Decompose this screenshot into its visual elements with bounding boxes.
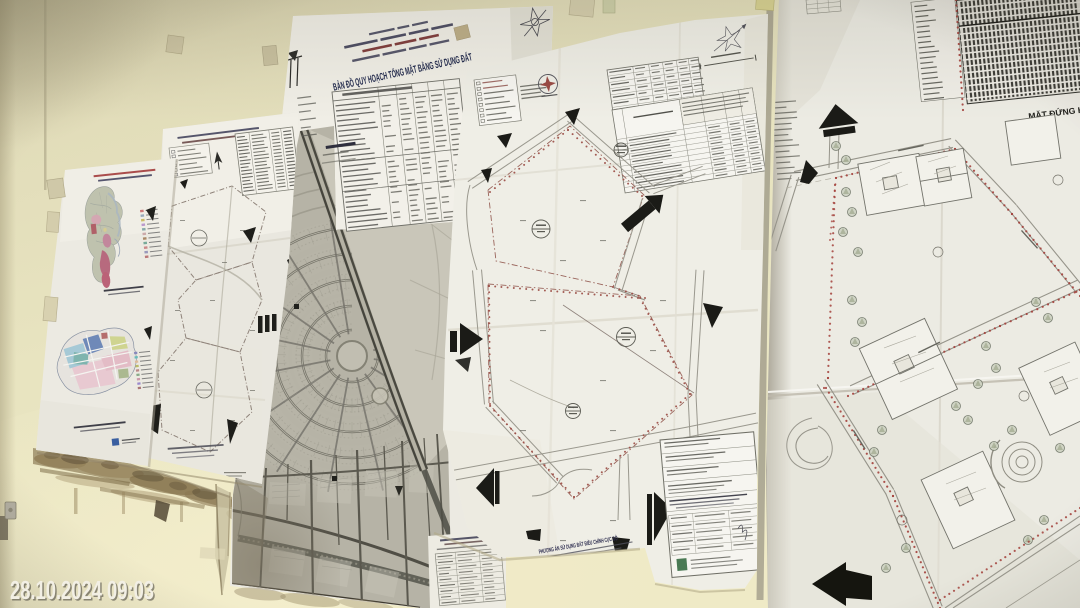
svg-text:28.10.2024 09:03: 28.10.2024 09:03 [10,575,154,605]
